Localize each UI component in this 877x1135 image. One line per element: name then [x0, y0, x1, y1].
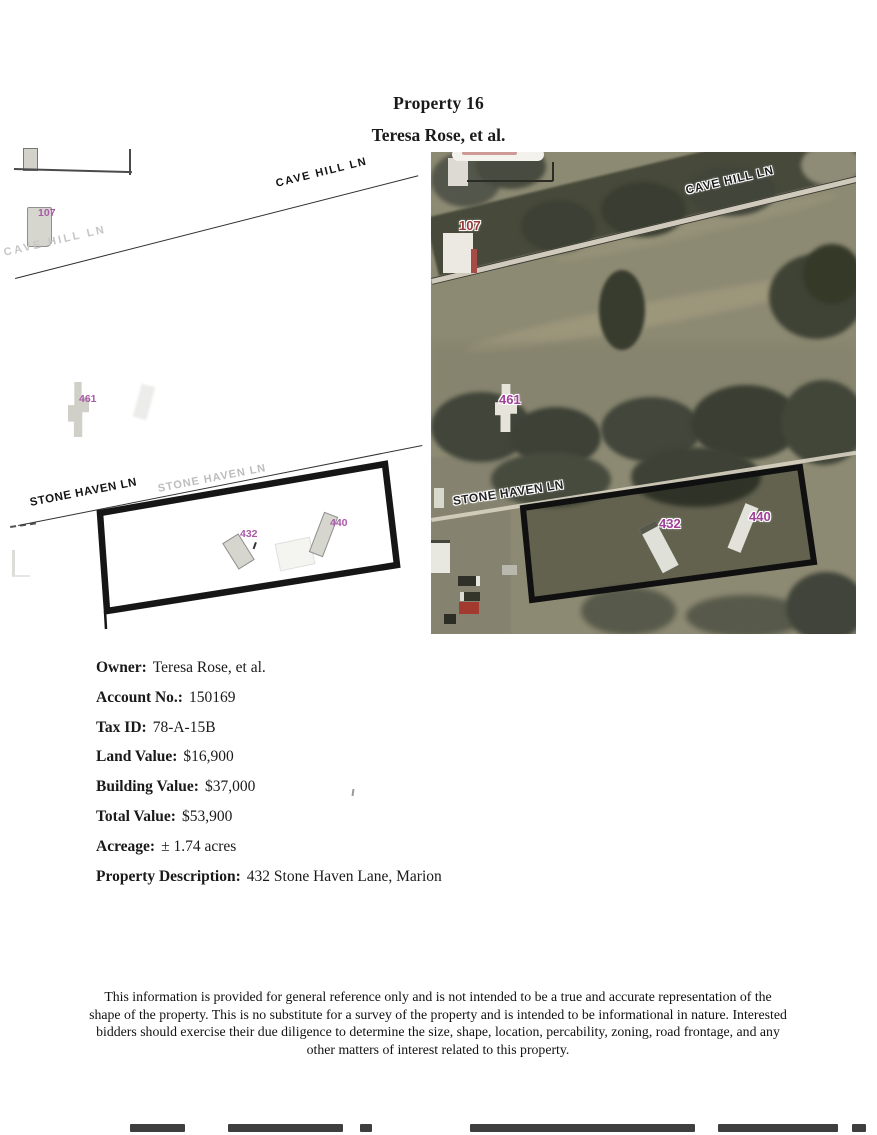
- detail-label: Property Description:: [96, 868, 241, 885]
- vehicle: [502, 565, 517, 575]
- vehicle: [458, 576, 480, 586]
- parcel-line: [467, 180, 553, 182]
- partial-parcel-label: [452, 152, 544, 161]
- detail-label: Total Value:: [96, 808, 176, 825]
- detail-value: 432 Stone Haven Lane, Marion: [247, 868, 442, 885]
- parcel-line-tick: [552, 162, 554, 181]
- aerial-photo: CAVE HILL LN 107 461 STONE HAVEN LN 432 …: [431, 152, 856, 634]
- red-vehicle: [459, 602, 479, 614]
- vehicle: [444, 614, 456, 624]
- aerial-parcel-number-107: 107: [459, 218, 481, 233]
- detail-label: Land Value:: [96, 748, 177, 765]
- detail-value: 78-A-15B: [153, 719, 216, 736]
- shed: [434, 488, 444, 508]
- map-edge-artifact: [12, 550, 30, 577]
- detail-label: Owner:: [96, 659, 147, 676]
- detail-row-account: Account No.:150169: [96, 683, 616, 713]
- detail-value: Teresa Rose, et al.: [153, 659, 266, 676]
- detail-value: 150169: [189, 689, 236, 706]
- detail-row-total-value: Total Value:$53,900: [96, 802, 616, 832]
- page-subtitle: Teresa Rose, et al.: [0, 125, 877, 146]
- property-info-sheet: { "page": { "title": "Property 16", "sub…: [0, 0, 877, 1135]
- detail-label: Tax ID:: [96, 719, 147, 736]
- detail-value: ± 1.74 acres: [161, 838, 236, 855]
- disclaimer-text: This information is provided for general…: [88, 988, 788, 1058]
- aerial-building-topleft: [448, 158, 468, 186]
- detail-label: Acreage:: [96, 838, 155, 855]
- property-boundary-outline: [8, 145, 428, 635]
- aerial-building-107: [443, 233, 473, 273]
- property-boundary-outline-aerial: [431, 152, 856, 634]
- property-details: Owner:Teresa Rose, et al. Account No.:15…: [96, 653, 616, 891]
- aerial-parcel-number-432: 432: [659, 516, 681, 531]
- parcel-number-432: 432: [240, 528, 258, 540]
- detail-row-land-value: Land Value:$16,900: [96, 742, 616, 772]
- shed: [431, 540, 450, 573]
- detail-value: $53,900: [182, 808, 232, 825]
- detail-row-description: Property Description:432 Stone Haven Lan…: [96, 862, 616, 892]
- parcel-map: 107 CAVE HILL LN CAVE HILL LN 461 STONE …: [8, 145, 428, 635]
- parcel-number-440: 440: [330, 517, 348, 529]
- detail-row-acreage: Acreage:± 1.74 acres: [96, 832, 616, 862]
- title-block: Property 16 Teresa Rose, et al.: [0, 93, 877, 146]
- detail-row-taxid: Tax ID:78-A-15B: [96, 713, 616, 743]
- detail-label: Building Value:: [96, 778, 199, 795]
- detail-label: Account No.:: [96, 689, 183, 706]
- detail-value: $37,000: [205, 778, 255, 795]
- aerial-parcel-number-461: 461: [499, 392, 521, 407]
- page-title: Property 16: [0, 93, 877, 114]
- detail-value: $16,900: [183, 748, 233, 765]
- detail-row-owner: Owner:Teresa Rose, et al.: [96, 653, 616, 683]
- detail-row-building-value: Building Value:$37,000: [96, 772, 616, 802]
- aerial-parcel-number-440: 440: [749, 509, 771, 524]
- aerial-building-107-red-strip: [471, 249, 477, 273]
- vehicle: [460, 592, 480, 601]
